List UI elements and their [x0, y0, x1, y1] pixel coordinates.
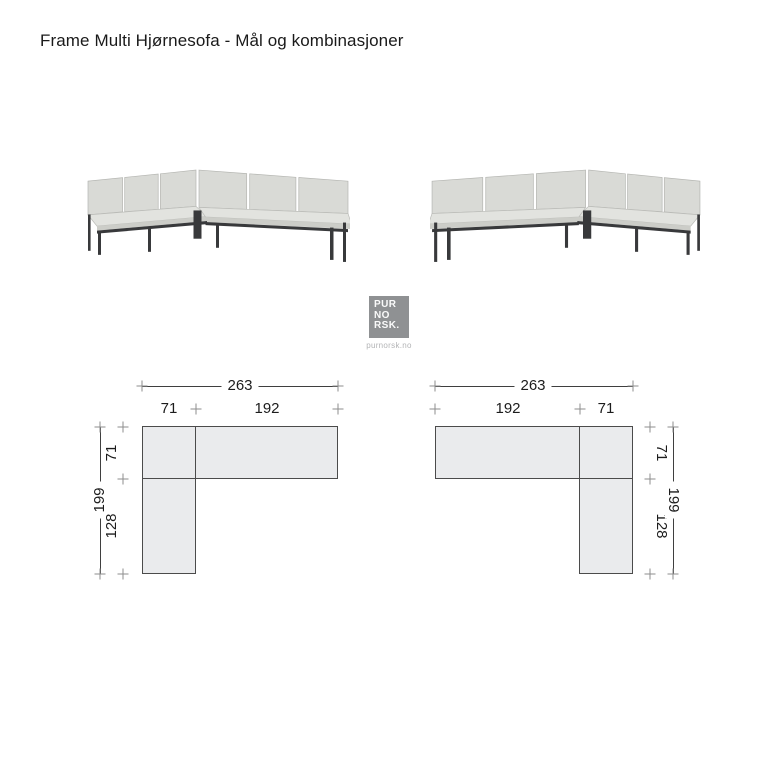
- total-width-label: 263: [514, 378, 551, 394]
- dim-tick: [333, 381, 344, 392]
- dim-tick: [118, 474, 129, 485]
- footprint-long-section: [195, 426, 338, 479]
- segment-width-label: 192: [248, 401, 285, 417]
- dim-tick: [668, 569, 679, 580]
- footprint-long-section: [435, 426, 580, 479]
- purnorsk-logo-mark: PUR NO RSK.: [369, 296, 409, 338]
- dim-tick: [645, 422, 656, 433]
- dim-tick: [430, 381, 441, 392]
- dim-tick: [95, 422, 106, 433]
- footprint-corner: [579, 426, 633, 479]
- dim-tick: [575, 404, 586, 415]
- total-height-label: 199: [665, 481, 681, 518]
- dim-tick: [118, 422, 129, 433]
- dim-tick: [668, 422, 679, 433]
- logo-line: RSK.: [374, 321, 409, 332]
- dim-tick: [430, 404, 441, 415]
- dim-tick: [191, 404, 202, 415]
- footprint-corner: [142, 426, 196, 479]
- footprint-leg-section: [579, 478, 633, 574]
- logo-line: PUR: [374, 300, 409, 311]
- sofa-render-right: [430, 164, 702, 270]
- dim-tick: [137, 381, 148, 392]
- total-width-label: 263: [221, 378, 258, 394]
- dim-tick: [118, 569, 129, 580]
- dim-tick: [645, 474, 656, 485]
- segment-depth-label: 128: [104, 507, 120, 544]
- footprint-leg-section: [142, 478, 196, 574]
- dim-tick: [628, 381, 639, 392]
- page-title: Frame Multi Hjørnesofa - Mål og kombinas…: [40, 31, 404, 51]
- dim-tick: [333, 404, 344, 415]
- dim-tick: [95, 569, 106, 580]
- purnorsk-logo-url: purnorsk.no: [353, 341, 425, 350]
- dim-tick: [645, 569, 656, 580]
- segment-width-label: 192: [489, 401, 526, 417]
- page: Frame Multi Hjørnesofa - Mål og kombinas…: [0, 0, 778, 778]
- segment-width-label: 71: [592, 401, 621, 417]
- segment-depth-label: 71: [104, 439, 120, 468]
- sofa-render-left: [86, 164, 350, 270]
- segment-depth-label: 71: [653, 439, 669, 468]
- segment-width-label: 71: [155, 401, 184, 417]
